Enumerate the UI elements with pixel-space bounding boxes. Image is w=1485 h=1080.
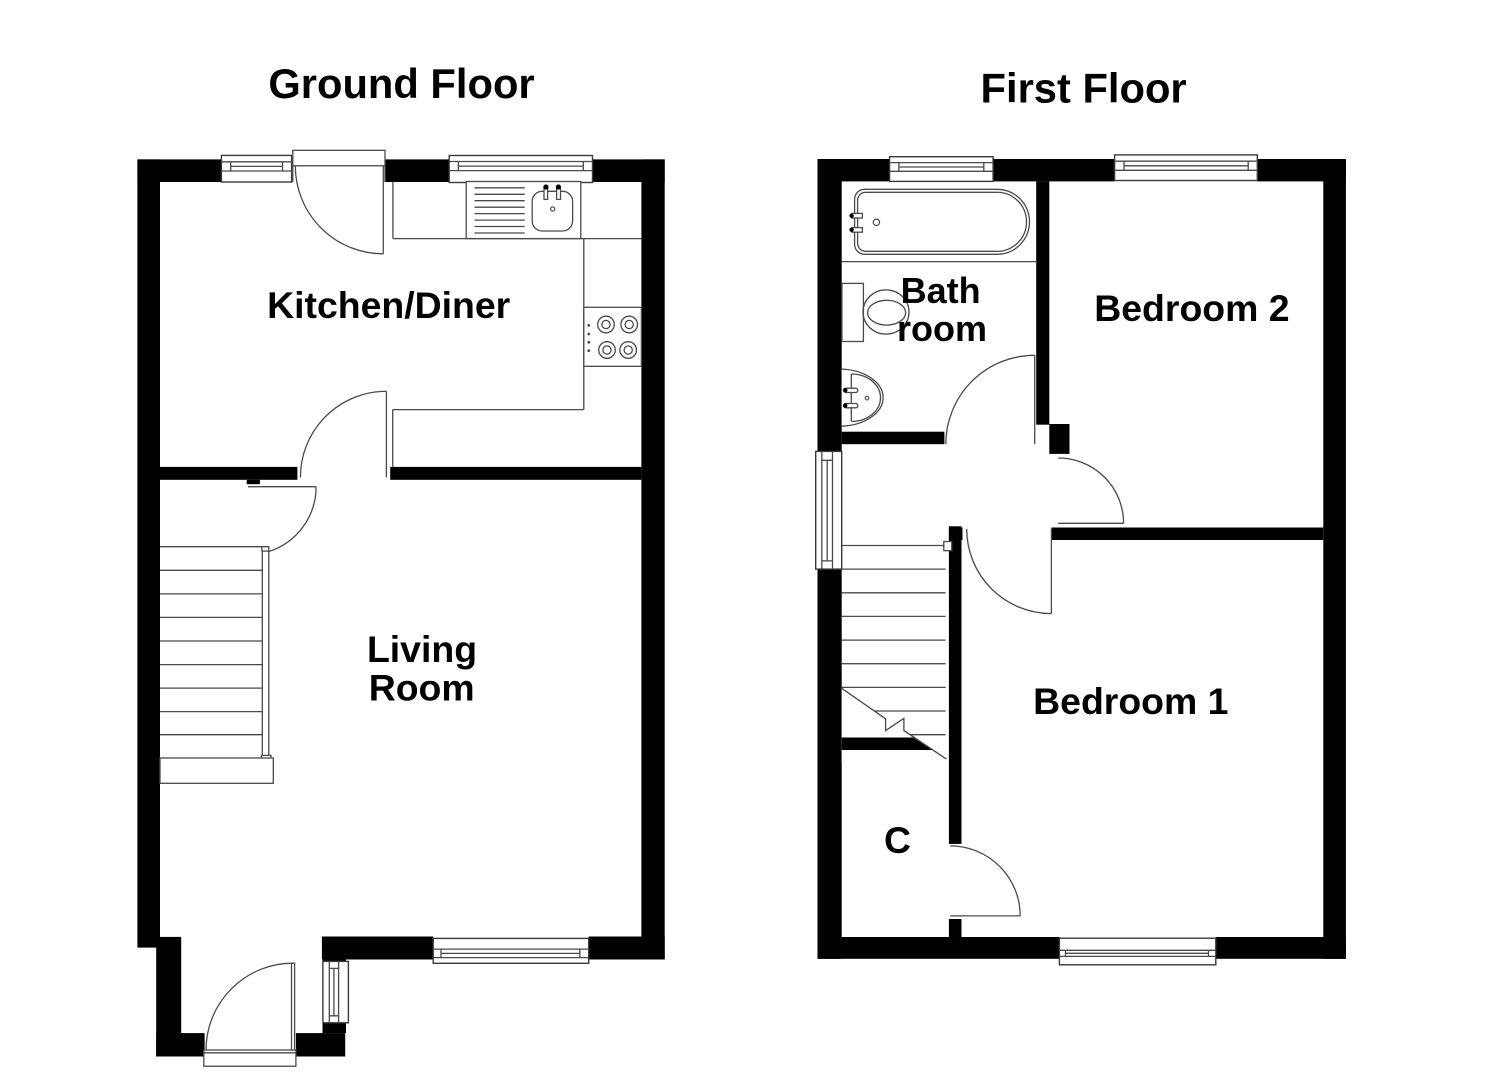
svg-text:Bath: Bath: [901, 270, 981, 311]
svg-text:First Floor: First Floor: [981, 65, 1187, 112]
svg-text:Bedroom 1: Bedroom 1: [1033, 680, 1228, 722]
svg-text:room: room: [897, 308, 987, 349]
svg-text:Kitchen/Diner: Kitchen/Diner: [267, 284, 510, 326]
svg-text:Bedroom 2: Bedroom 2: [1094, 287, 1289, 329]
svg-text:C: C: [884, 819, 911, 861]
svg-text:Room: Room: [369, 666, 475, 708]
svg-text:Living: Living: [367, 628, 477, 670]
svg-text:Ground Floor: Ground Floor: [268, 60, 534, 107]
